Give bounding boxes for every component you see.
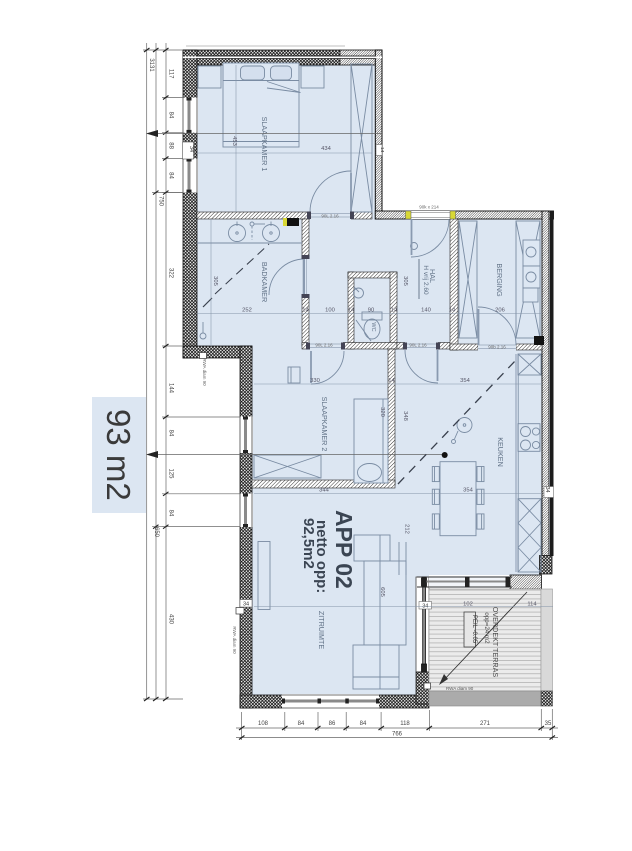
svg-text:BADKAMER: BADKAMER	[260, 262, 269, 302]
svg-text:RWA diam 90: RWA diam 90	[232, 626, 237, 654]
svg-text:252: 252	[242, 308, 252, 314]
svg-text:93 m2: 93 m2	[100, 409, 137, 501]
svg-text:118: 118	[400, 721, 410, 727]
svg-text:84: 84	[168, 112, 174, 119]
svg-text:322: 322	[168, 268, 174, 279]
svg-text:271: 271	[480, 721, 491, 727]
svg-text:84: 84	[168, 430, 174, 437]
svg-text:90k x 214: 90k x 214	[419, 205, 439, 210]
svg-text:84: 84	[298, 721, 305, 727]
svg-text:125: 125	[168, 468, 174, 479]
svg-text:H vrij 2.60: H vrij 2.60	[422, 265, 429, 295]
svg-text:BERGING: BERGING	[495, 263, 504, 297]
svg-text:RWA diam 90: RWA diam 90	[202, 358, 207, 386]
svg-text:750: 750	[158, 196, 164, 207]
svg-text:92,5m2: 92,5m2	[300, 518, 317, 569]
svg-text:SLAAPKAMER 2: SLAAPKAMER 2	[320, 397, 329, 452]
svg-text:90L 2.16: 90L 2.16	[409, 343, 427, 348]
svg-text:PEIL -0.05: PEIL -0.05	[471, 615, 477, 644]
svg-text:APP 02: APP 02	[331, 510, 357, 589]
svg-text:14: 14	[449, 308, 456, 314]
svg-text:344: 344	[319, 488, 329, 494]
svg-text:88: 88	[168, 142, 174, 149]
svg-text:opp=24 m2: opp=24 m2	[483, 612, 490, 644]
svg-text:86: 86	[329, 721, 336, 727]
svg-text:117: 117	[168, 69, 174, 79]
svg-text:330: 330	[310, 378, 320, 384]
svg-text:305: 305	[402, 276, 408, 286]
svg-text:RWA diam 90: RWA diam 90	[446, 686, 474, 691]
svg-text:ZITRUIMTE: ZITRUIMTE	[317, 611, 326, 650]
svg-text:WC: WC	[370, 322, 376, 331]
svg-text:84: 84	[360, 721, 367, 727]
svg-text:354: 354	[460, 378, 470, 384]
svg-text:14: 14	[302, 308, 309, 314]
svg-text:140: 140	[421, 308, 431, 314]
svg-text:84: 84	[168, 172, 174, 179]
svg-text:35: 35	[545, 721, 552, 727]
svg-text:34: 34	[544, 486, 550, 492]
svg-text:34: 34	[188, 146, 194, 152]
svg-text:14: 14	[348, 308, 355, 314]
svg-text:102: 102	[463, 602, 473, 608]
svg-text:84: 84	[168, 510, 174, 517]
svg-text:KEUKEN: KEUKEN	[496, 437, 505, 467]
svg-text:14: 14	[379, 147, 385, 153]
svg-text:90: 90	[368, 308, 374, 314]
svg-text:108: 108	[258, 721, 269, 727]
svg-text:354: 354	[463, 488, 473, 494]
svg-text:348: 348	[402, 411, 408, 421]
svg-text:90b 2.16: 90b 2.16	[488, 345, 506, 350]
svg-text:212: 212	[404, 524, 410, 534]
svg-text:OVERDEKT TERRAS: OVERDEKT TERRAS	[491, 607, 500, 678]
svg-text:605: 605	[379, 587, 385, 597]
svg-text:114: 114	[527, 602, 537, 608]
svg-text:320: 320	[379, 407, 385, 417]
svg-text:144: 144	[168, 383, 174, 394]
svg-text:650: 650	[153, 527, 159, 538]
svg-text:305: 305	[212, 276, 218, 286]
svg-text:34: 34	[243, 601, 249, 607]
svg-text:3131: 3131	[148, 58, 154, 72]
svg-text:766: 766	[392, 732, 403, 738]
svg-text:SLAAPKAMER 1: SLAAPKAMER 1	[260, 117, 269, 172]
svg-text:100: 100	[325, 308, 335, 314]
svg-text:14: 14	[388, 378, 395, 384]
svg-text:453: 453	[231, 136, 237, 146]
svg-text:430: 430	[168, 614, 174, 625]
svg-text:434: 434	[321, 146, 331, 152]
svg-text:90L 2.16: 90L 2.16	[321, 214, 339, 219]
svg-text:206: 206	[495, 308, 505, 314]
svg-text:14: 14	[391, 308, 398, 314]
svg-text:90L 2.16: 90L 2.16	[315, 343, 333, 348]
